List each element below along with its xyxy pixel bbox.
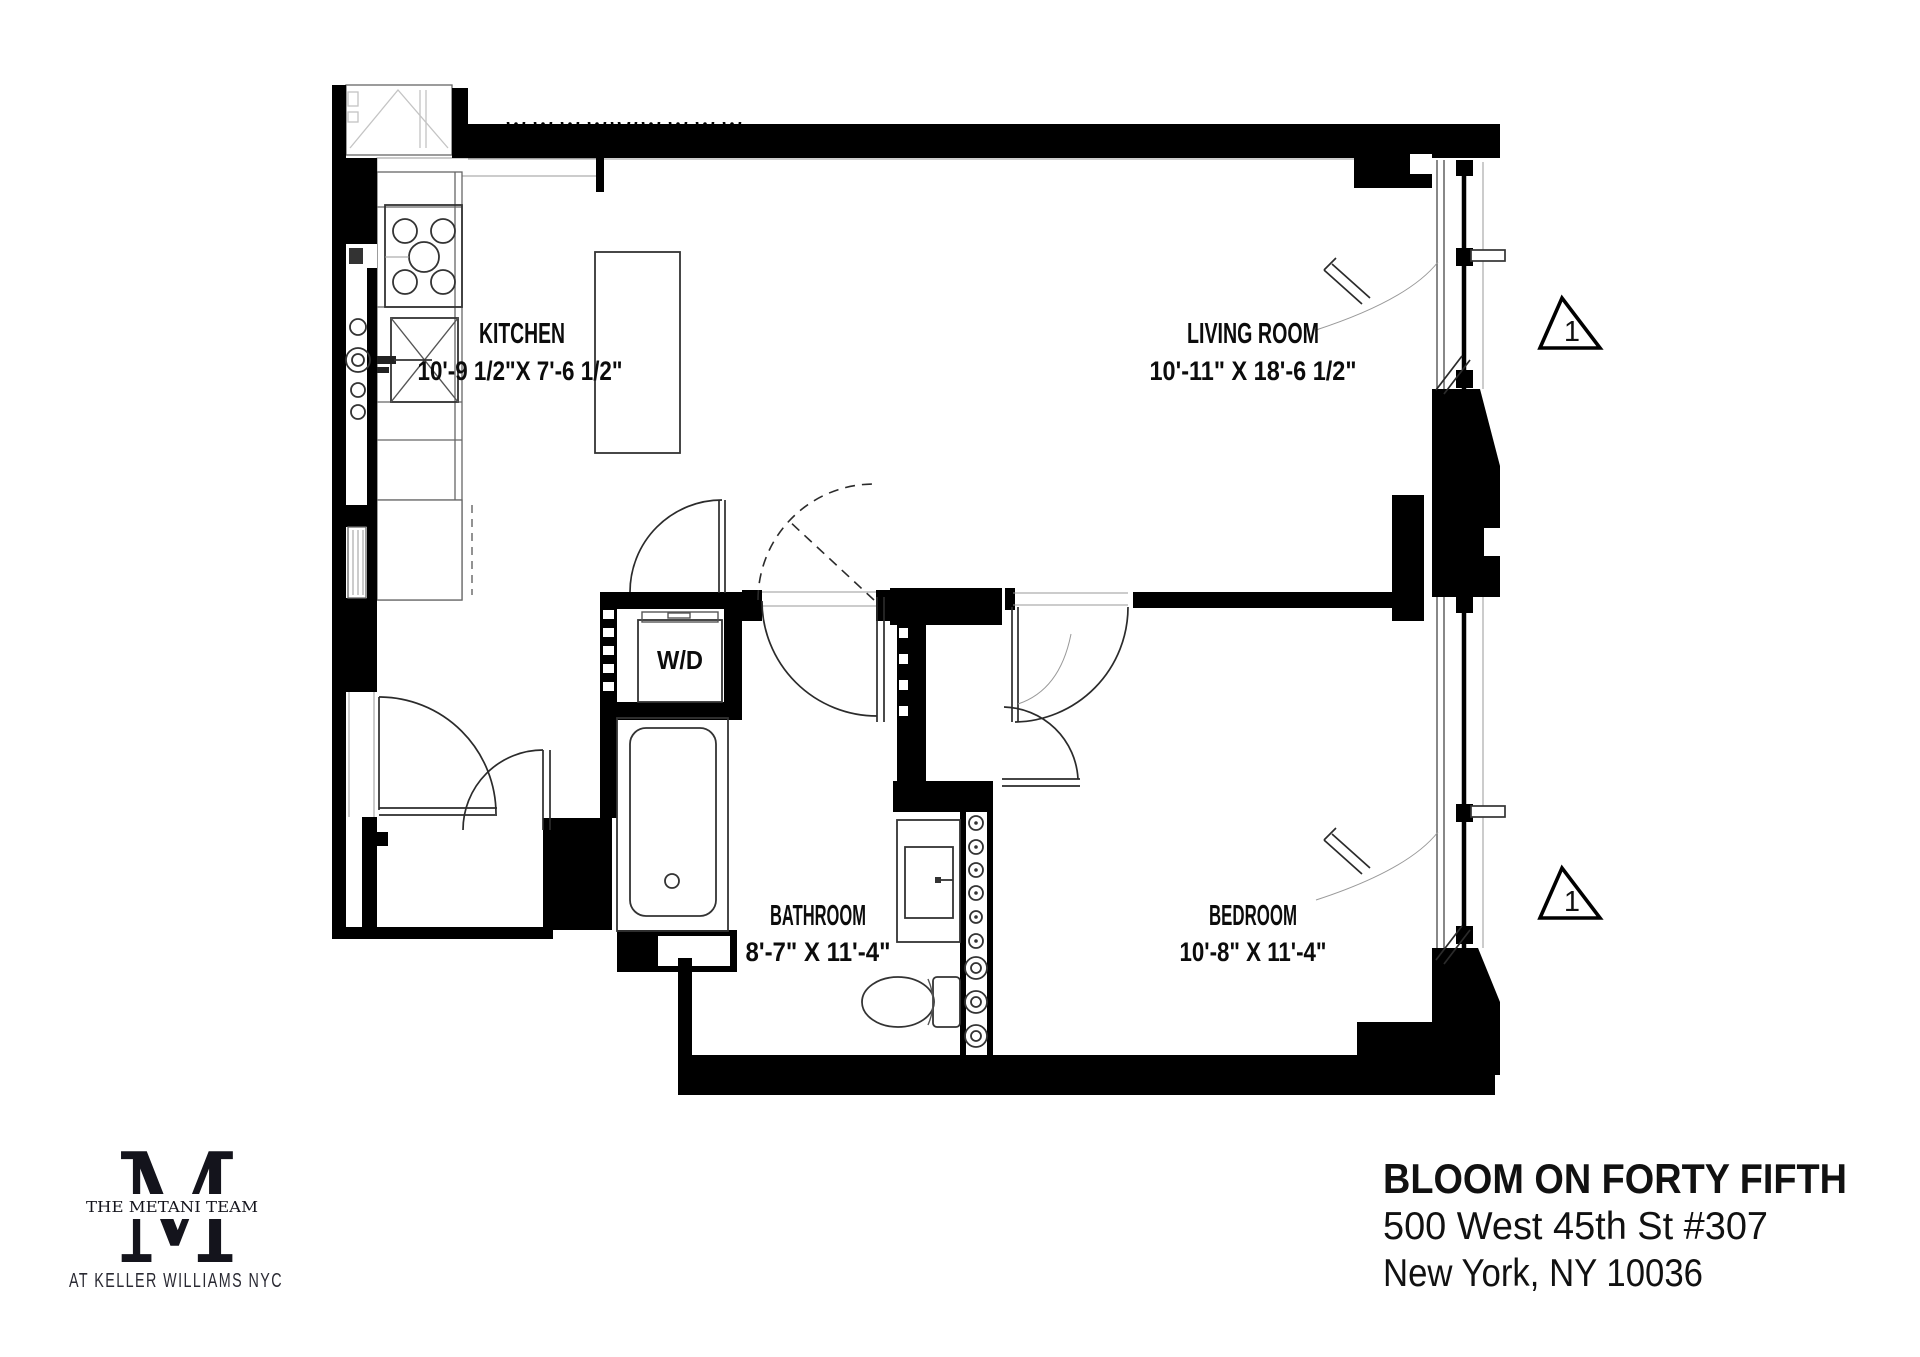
floor-plan-drawing: W/D 1 1 KITCHEN 10'-9 1/2"X	[0, 0, 1920, 1357]
logo-subtitle: AT KELLER WILLIAMS NYC	[69, 1270, 283, 1292]
living-room-label: LIVING ROOM	[1187, 318, 1319, 350]
bedroom-dimensions: 10'-8" X 11'-4"	[1180, 937, 1327, 967]
address-line-2: New York, NY 10036	[1383, 1252, 1703, 1295]
washer-dryer-label: W/D	[657, 645, 703, 675]
building-name: BLOOM ON FORTY FIFTH	[1383, 1155, 1847, 1202]
bedroom-label: BEDROOM	[1209, 900, 1297, 932]
address-line-1: 500 West 45th St #307	[1383, 1205, 1768, 1248]
kitchen-cabinet	[377, 500, 462, 600]
window-handle-icon	[1471, 806, 1505, 817]
window-marker-2: 1	[1540, 868, 1600, 918]
bathroom-dimensions: 8'-7" X 11'-4"	[746, 937, 891, 967]
listing-address-block: BLOOM ON FORTY FIFTH 500 West 45th St #3…	[1383, 1155, 1847, 1295]
metani-team-logo: M THE METANI TEAM AT KELLER WILLIAMS NYC	[69, 1121, 283, 1298]
vanity-sink-icon	[897, 820, 960, 942]
kitchen-label: KITCHEN	[479, 318, 565, 350]
kitchen-island	[595, 252, 680, 453]
bathroom-label: BATHROOM	[770, 900, 866, 932]
washer-dryer: W/D	[638, 612, 722, 702]
wall-ticks	[603, 610, 908, 716]
window-marker-1-label: 1	[1564, 316, 1580, 348]
logo-team-name: THE METANI TEAM	[86, 1198, 258, 1216]
doors	[379, 484, 1128, 830]
window-handle-icon	[1471, 250, 1505, 261]
window-marker-1: 1	[1540, 298, 1600, 348]
window-marker-2-label: 1	[1564, 886, 1580, 918]
toilet-icon	[862, 977, 960, 1027]
entry-closet-shelf	[346, 85, 452, 155]
kitchen-dimensions: 10'-9 1/2"X 7'-6 1/2"	[418, 356, 623, 386]
floor-plan-page: W/D 1 1 KITCHEN 10'-9 1/2"X	[0, 0, 1920, 1357]
living-room-dimensions: 10'-11" X 18'-6 1/2"	[1150, 356, 1357, 386]
bathtub-icon	[617, 718, 728, 931]
